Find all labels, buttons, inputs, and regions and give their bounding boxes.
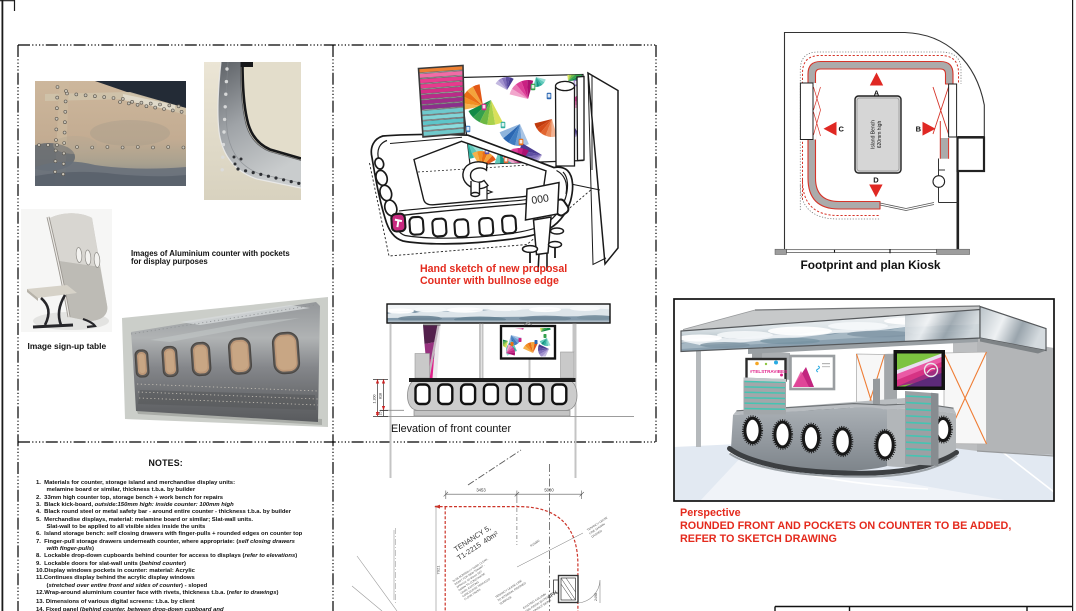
svg-text:2498: 2498 [594, 593, 598, 601]
svg-text:1 200: 1 200 [373, 395, 377, 404]
svg-text:620mm high: 620mm high [877, 121, 883, 149]
svg-text:Island Bench: Island Bench [871, 120, 877, 149]
svg-text:25: 25 [379, 411, 383, 415]
svg-text:818: 818 [379, 393, 383, 399]
svg-text:7021: 7021 [436, 565, 441, 575]
svg-text:D: D [873, 176, 879, 185]
svg-text:#TELSTRAVIBES: #TELSTRAVIBES [750, 369, 787, 374]
svg-text:C: C [839, 125, 845, 134]
svg-text:R15000: R15000 [529, 539, 540, 548]
svg-text:B: B [916, 125, 922, 134]
svg-text:3453: 3453 [476, 488, 486, 493]
svg-text:4FH: 4FH [547, 590, 559, 601]
svg-text:A: A [874, 89, 880, 98]
